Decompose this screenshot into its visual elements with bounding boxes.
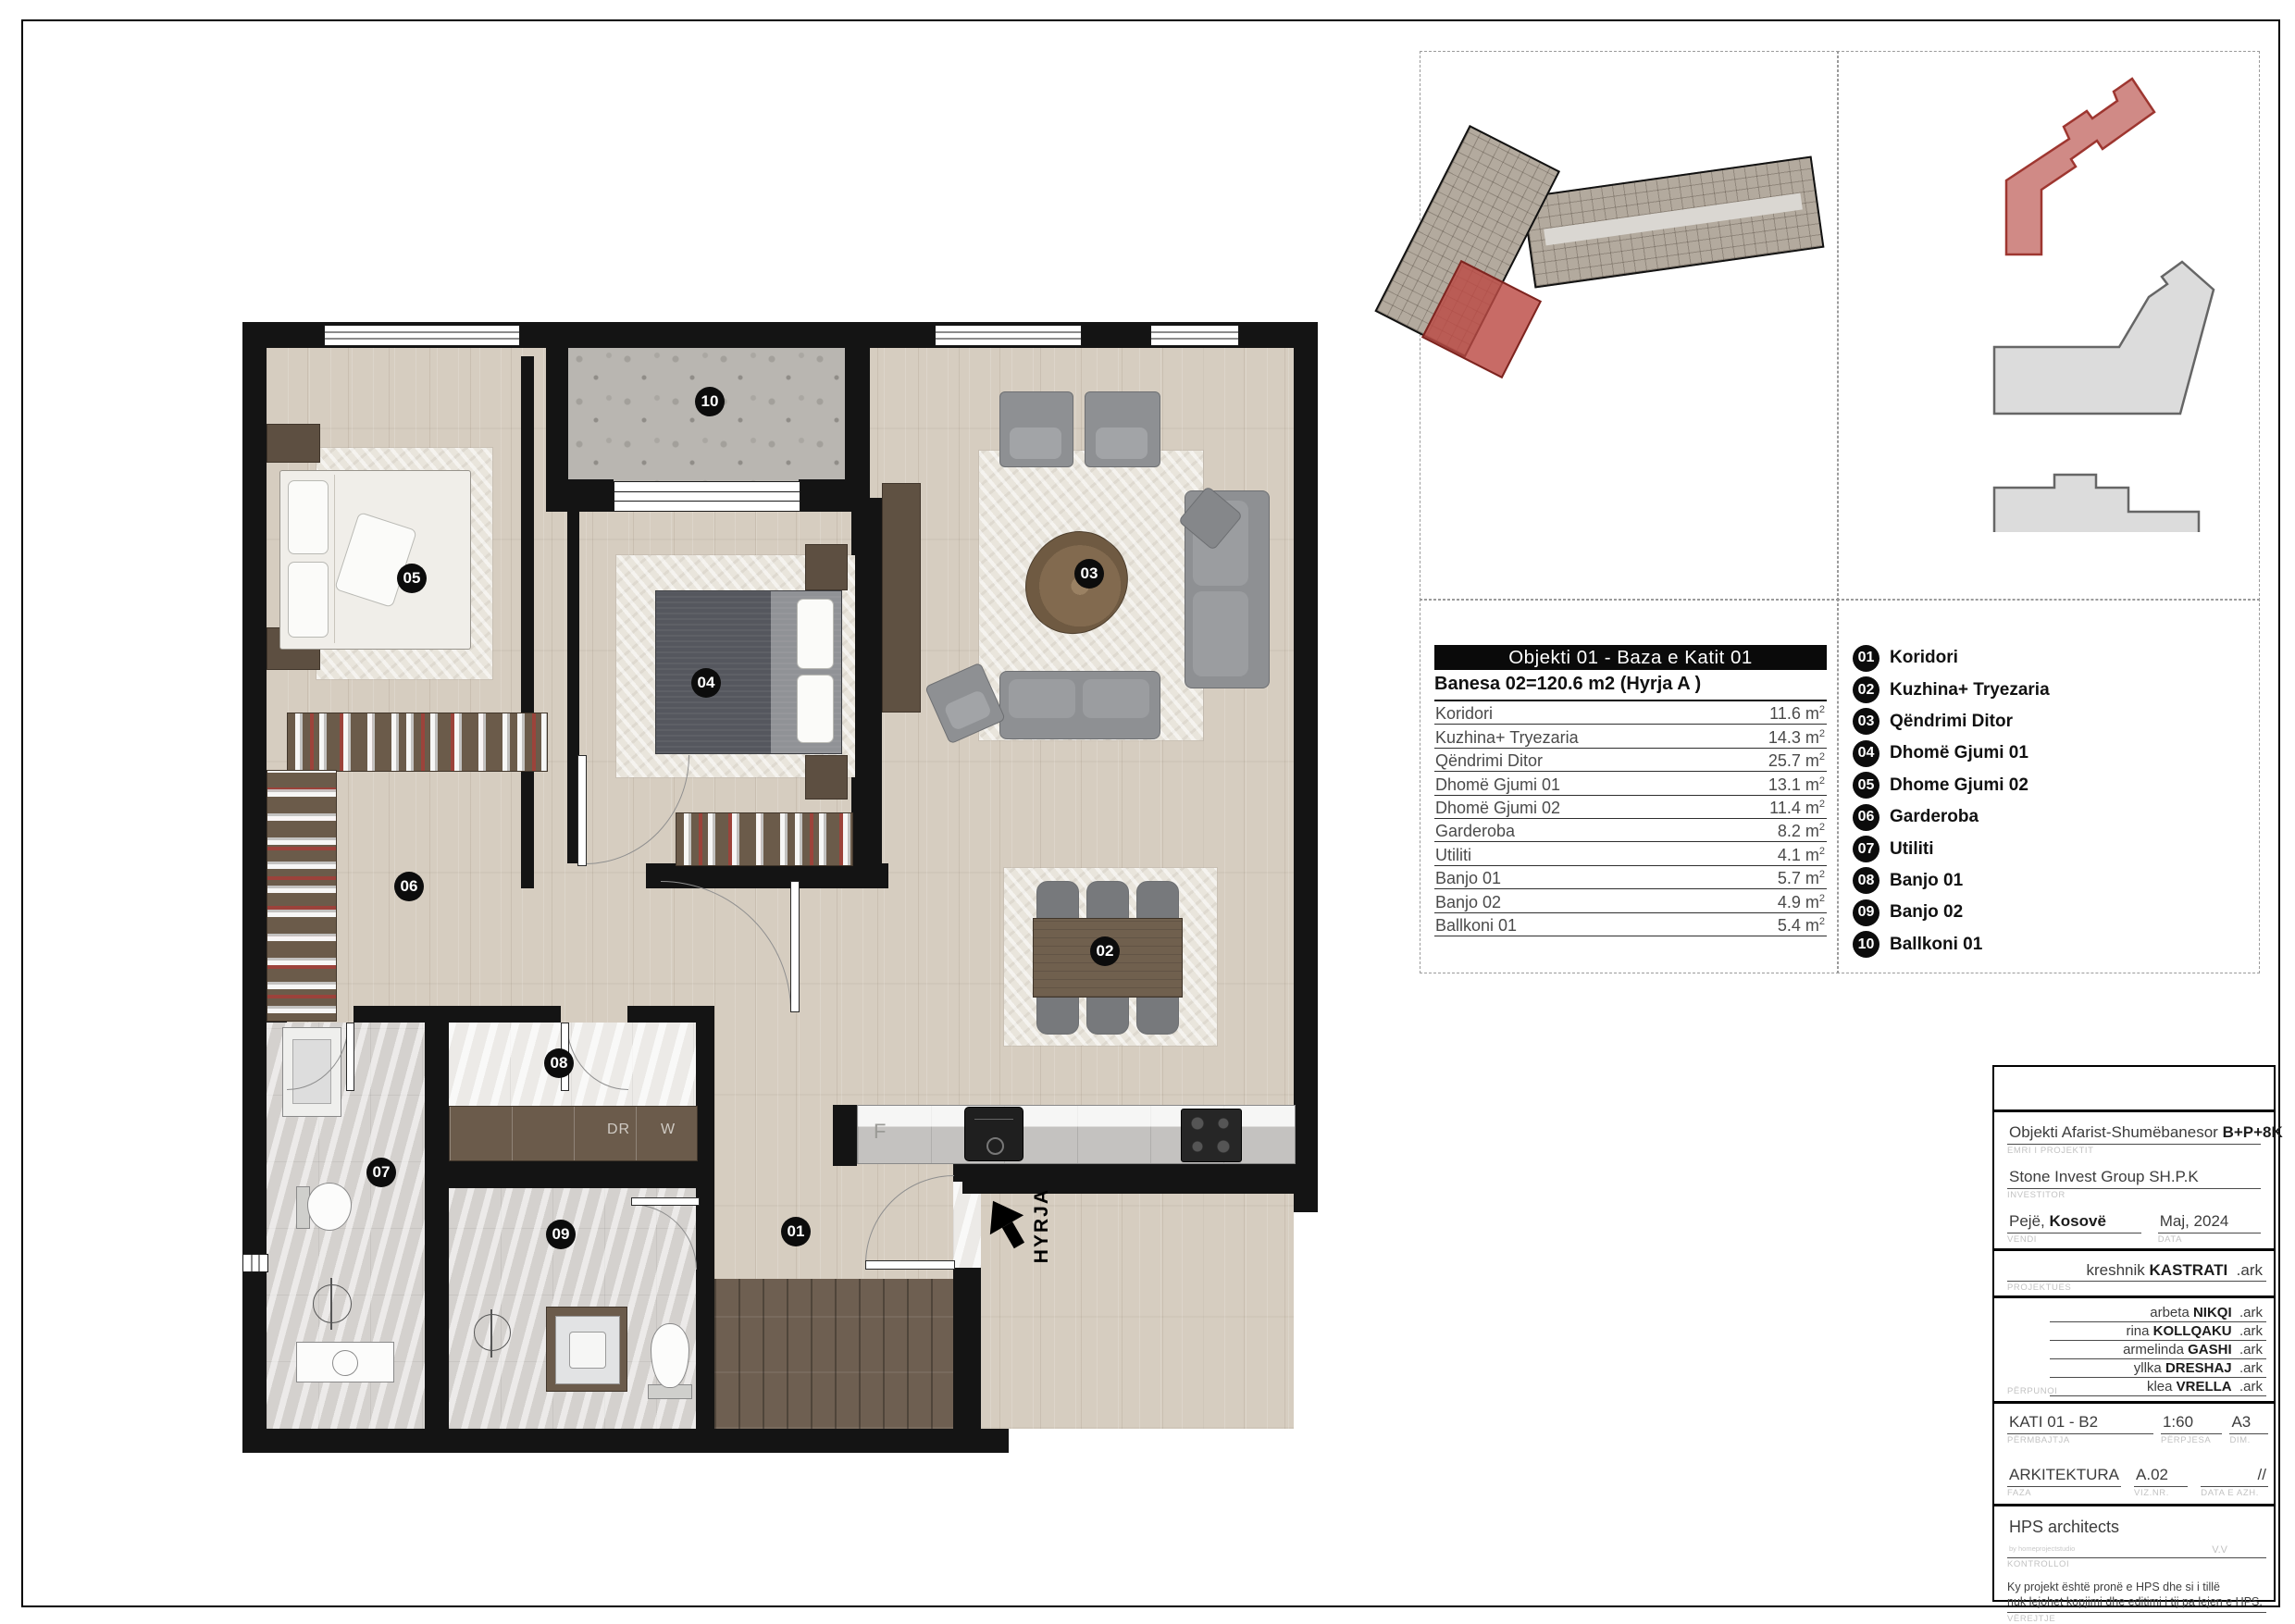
table-row: Dhomë Gjumi 0211.4 m2 — [1434, 796, 1827, 819]
note-label: VËREJTJE — [2007, 1614, 2266, 1624]
loveseat — [999, 671, 1160, 739]
wall-bottom — [242, 1429, 1009, 1453]
wardrobe-bedroom04 — [676, 812, 853, 866]
nightstand — [805, 755, 848, 800]
wall-balcony-sill-l — [568, 479, 614, 512]
note-text: Ky projekt është pronë e HPS dhe si i ti… — [2007, 1581, 2266, 1613]
wall-balcony-right — [845, 322, 870, 512]
sheet-format-label: DIM. — [2229, 1435, 2268, 1445]
room-badge: 08 — [544, 1048, 574, 1078]
date: Maj, 2024 — [2158, 1212, 2261, 1233]
room-badge: 06 — [394, 872, 424, 901]
designer-label: PROJEKTUES — [2007, 1283, 2266, 1293]
investor-label: INVESTITOR — [2007, 1190, 2261, 1200]
control-firm: HPS architects by homeprojectstudio V.V — [2007, 1518, 2266, 1558]
title-block-designer-section: kreshnik KASTRATI .ark PROJEKTUES — [1994, 1248, 2274, 1298]
wall-07-08 — [425, 1023, 449, 1429]
sheet-update-date-label: DATA E AZH. — [2201, 1488, 2268, 1498]
window-bedroom05 — [324, 325, 520, 346]
legend-item: 05Dhome Gjumi 02 — [1853, 770, 2158, 801]
entrance-label: HYRJA — [1031, 1188, 1053, 1263]
place: Pejë, Kosovë — [2007, 1212, 2141, 1233]
table-row: Dhomë Gjumi 0113.1 m2 — [1434, 772, 1827, 795]
window-living-1 — [935, 325, 1082, 346]
title-block-control-section: HPS architects by homeprojectstudio V.V … — [1994, 1504, 2274, 1603]
wardrobe-shelf-left — [267, 770, 337, 1022]
investor-name: Stone Invest Group SH.P.K — [2007, 1168, 2261, 1189]
nightstand — [267, 424, 320, 463]
team-label: PËRPUNOI — [2007, 1386, 2057, 1396]
title-block: Objekti Afarist-Shumëbanesor B+P+8K EMRI… — [1992, 1065, 2276, 1602]
room-badge: 10 — [695, 387, 725, 416]
legend-item: 07Utiliti — [1853, 833, 2158, 864]
date-label: DATA — [2158, 1234, 2261, 1245]
wall-r05-right — [521, 356, 534, 888]
wall-entry-right-bottom — [953, 1268, 981, 1429]
wall-entry-right-top — [953, 1162, 981, 1182]
legend-item: 08Banjo 01 — [1853, 865, 2158, 897]
team-member: klea VRELLA .ark — [2050, 1378, 2266, 1396]
window-left-small — [242, 1254, 268, 1272]
sheet-format: A3 — [2229, 1413, 2268, 1434]
team-member: rina KOLLQAKU .ark — [2050, 1322, 2266, 1341]
room-badge: 02 — [1090, 936, 1120, 966]
sheet-phase-label: FAZA — [2007, 1488, 2121, 1498]
window-balcony-door — [614, 481, 800, 512]
wall-kitchen-left — [833, 1105, 857, 1166]
shower-symbol-07 — [313, 1284, 352, 1323]
wardrobe-shelf-top — [287, 713, 548, 772]
table-row: Garderoba8.2 m2 — [1434, 819, 1827, 842]
sheet-content: KATI 01 - B2 — [2007, 1413, 2153, 1434]
team-member: yllka DRESHAJ .ark — [2050, 1359, 2266, 1378]
room-legend: 01Koridori 02Kuzhina+ Tryezaria 03Qëndri… — [1853, 642, 2158, 961]
wall-balcony-sill-r — [799, 479, 845, 512]
fridge-label: F — [874, 1120, 887, 1144]
entry-mat — [714, 1279, 953, 1429]
area-table-title: Objekti 01 - Baza e Katit 01 — [1434, 645, 1827, 670]
legend-item: 10Ballkoni 01 — [1853, 929, 2158, 961]
wall-left — [242, 322, 267, 1453]
area-table: Objekti 01 - Baza e Katit 01 Banesa 02=1… — [1434, 645, 1827, 936]
door-leaf — [346, 1023, 354, 1091]
room-badge: 04 — [691, 668, 721, 698]
floor-plan: F DR W 01 02 03 04 — [239, 322, 1321, 1453]
sheet-scale: 1:60 — [2161, 1413, 2223, 1434]
entrance-marker: HYRJA — [986, 1188, 1053, 1263]
table-row: Banjo 024.9 m2 — [1434, 889, 1827, 912]
control-initials: V.V — [2212, 1544, 2264, 1556]
room-badge: 01 — [781, 1217, 811, 1246]
sheet-viznr: A.02 — [2134, 1466, 2188, 1487]
window-living-2 — [1150, 325, 1239, 346]
room-badge: 03 — [1074, 559, 1104, 589]
mass-highlighted — [2006, 79, 2154, 254]
door-leaf — [577, 755, 587, 866]
bed-04 — [655, 590, 842, 754]
area-table-subtitle: Banesa 02=120.6 m2 (Hyrja A ) — [1434, 670, 1827, 701]
dryer-label: DR — [607, 1122, 630, 1138]
room-badge: 07 — [366, 1158, 396, 1187]
room-badge: 09 — [546, 1220, 576, 1249]
title-block-content-section: KATI 01 - B2 PËRMBAJTJA 1:60 PËRPJESA A3… — [1994, 1401, 2274, 1506]
cooktop — [1181, 1109, 1242, 1162]
sofa-right — [1185, 490, 1270, 688]
place-label: VENDI — [2007, 1234, 2141, 1245]
sheet-phase: ARKITEKTURA — [2007, 1466, 2121, 1487]
sheet-content-label: PËRMBAJTJA — [2007, 1435, 2153, 1445]
washer-label: W — [661, 1122, 676, 1138]
title-block-empty-box — [1994, 1067, 2274, 1110]
legend-item: 03Qëndrimi Ditor — [1853, 706, 2158, 738]
tv-console — [882, 483, 921, 713]
sink-07 — [296, 1342, 394, 1382]
table-row: Qëndrimi Ditor25.7 m2 — [1434, 749, 1827, 772]
legend-item: 04Dhomë Gjumi 01 — [1853, 738, 2158, 769]
mass-gray-1 — [1994, 262, 2214, 414]
title-block-project-section: Objekti Afarist-Shumëbanesor B+P+8K EMRI… — [1994, 1110, 2274, 1251]
room-badge: 05 — [397, 564, 427, 593]
building-mass-shapes — [1906, 69, 2230, 532]
sheet-update-date: // — [2201, 1466, 2268, 1487]
legend-item: 09Banjo 02 — [1853, 897, 2158, 928]
drawing-sheet: { "area_table": { "header": "Objekti 01 … — [0, 0, 2295, 1622]
armchair — [1085, 391, 1160, 467]
project-name: Objekti Afarist-Shumëbanesor B+P+8K — [2007, 1123, 2261, 1145]
team-member: arbeta NIKQI .ark — [2050, 1304, 2266, 1322]
wall-08-09 — [449, 1159, 714, 1188]
table-row: Ballkoni 015.4 m2 — [1434, 913, 1827, 936]
entry-threshold — [953, 1182, 981, 1268]
team-member: armelinda GASHI .ark — [2050, 1341, 2266, 1359]
vanity-09 — [546, 1307, 627, 1392]
legend-item: 06Garderoba — [1853, 801, 2158, 833]
wall-corridor — [696, 1006, 714, 1429]
kitchen-sink — [964, 1107, 1023, 1161]
control-firm-sub: by homeprojectstudio — [2009, 1544, 2075, 1553]
designer-name: kreshnik KASTRATI .ark — [2007, 1260, 2266, 1282]
legend-item: 02Kuzhina+ Tryezaria — [1853, 674, 2158, 705]
door-leaf — [790, 881, 800, 1012]
door-leaf — [631, 1197, 700, 1206]
armchair — [999, 391, 1073, 467]
control-label: KONTROLLOI — [2007, 1559, 2266, 1569]
bed-05 — [279, 470, 471, 650]
title-block-team-section: arbeta NIKQI .ark rina KOLLQAKU .ark arm… — [1994, 1295, 2274, 1404]
wall-bath-top-b — [354, 1006, 561, 1023]
sheet-viznr-label: VIZ.NR. — [2134, 1488, 2188, 1498]
mass-gray-2 — [1994, 475, 2199, 532]
wall-balcony-left — [546, 322, 568, 512]
door-leaf-entry — [865, 1260, 955, 1270]
legend-item: 01Koridori — [1853, 642, 2158, 674]
table-row: Koridori11.6 m2 — [1434, 701, 1827, 725]
sheet-scale-label: PËRPJESA — [2161, 1435, 2223, 1445]
project-name-label: EMRI I PROJEKTIT — [2007, 1146, 2261, 1156]
wall-r04-right — [851, 498, 882, 888]
shower-symbol-09 — [474, 1314, 511, 1351]
nightstand — [805, 544, 848, 590]
table-row: Utiliti4.1 m2 — [1434, 842, 1827, 865]
table-row: Banjo 015.7 m2 — [1434, 866, 1827, 889]
table-row: Kuzhina+ Tryezaria14.3 m2 — [1434, 725, 1827, 748]
wall-right — [1294, 322, 1318, 1212]
